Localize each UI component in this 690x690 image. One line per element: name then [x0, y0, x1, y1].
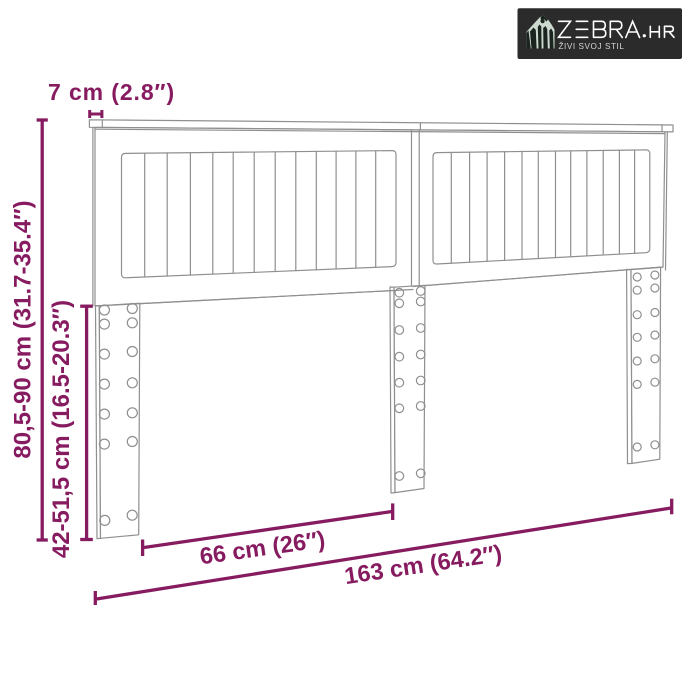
- svg-text:ŽIVI SVOJ STIL: ŽIVI SVOJ STIL: [559, 41, 625, 51]
- svg-text:80,5-90 cm (31.7-35.4″): 80,5-90 cm (31.7-35.4″): [10, 200, 37, 458]
- svg-text:42-51,5 cm (16.5-20.3″): 42-51,5 cm (16.5-20.3″): [48, 300, 75, 558]
- svg-text:7 cm (2.8″): 7 cm (2.8″): [48, 79, 175, 105]
